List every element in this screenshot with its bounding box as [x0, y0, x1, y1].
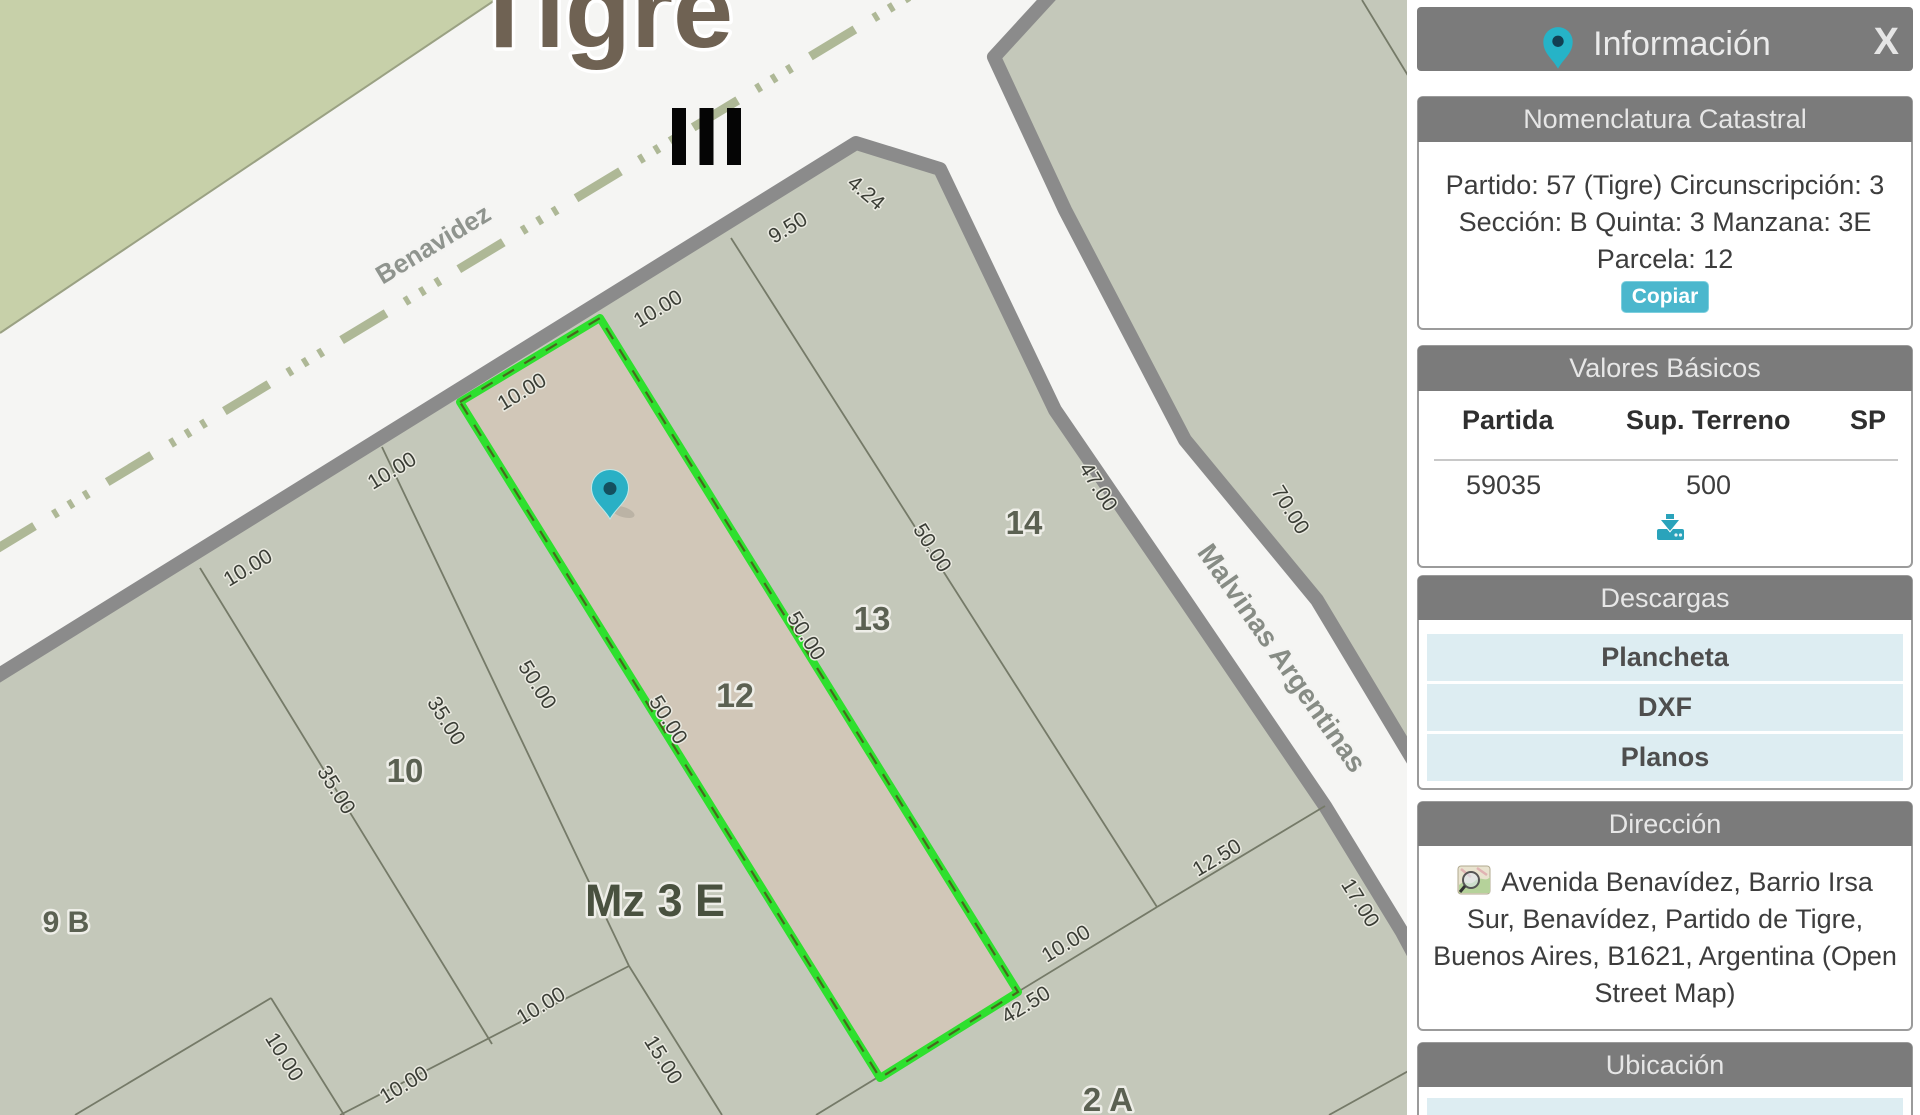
svg-text:13: 13 — [854, 600, 891, 637]
svg-text:2 A: 2 A — [1083, 1081, 1133, 1115]
svg-text:Mz 3 E: Mz 3 E — [585, 875, 725, 926]
svg-text:10: 10 — [387, 752, 424, 789]
svg-text:9 B: 9 B — [43, 906, 90, 939]
svg-text:12: 12 — [716, 677, 754, 715]
svg-text:14: 14 — [1006, 504, 1043, 541]
svg-text:Tigre: Tigre — [471, 0, 733, 70]
